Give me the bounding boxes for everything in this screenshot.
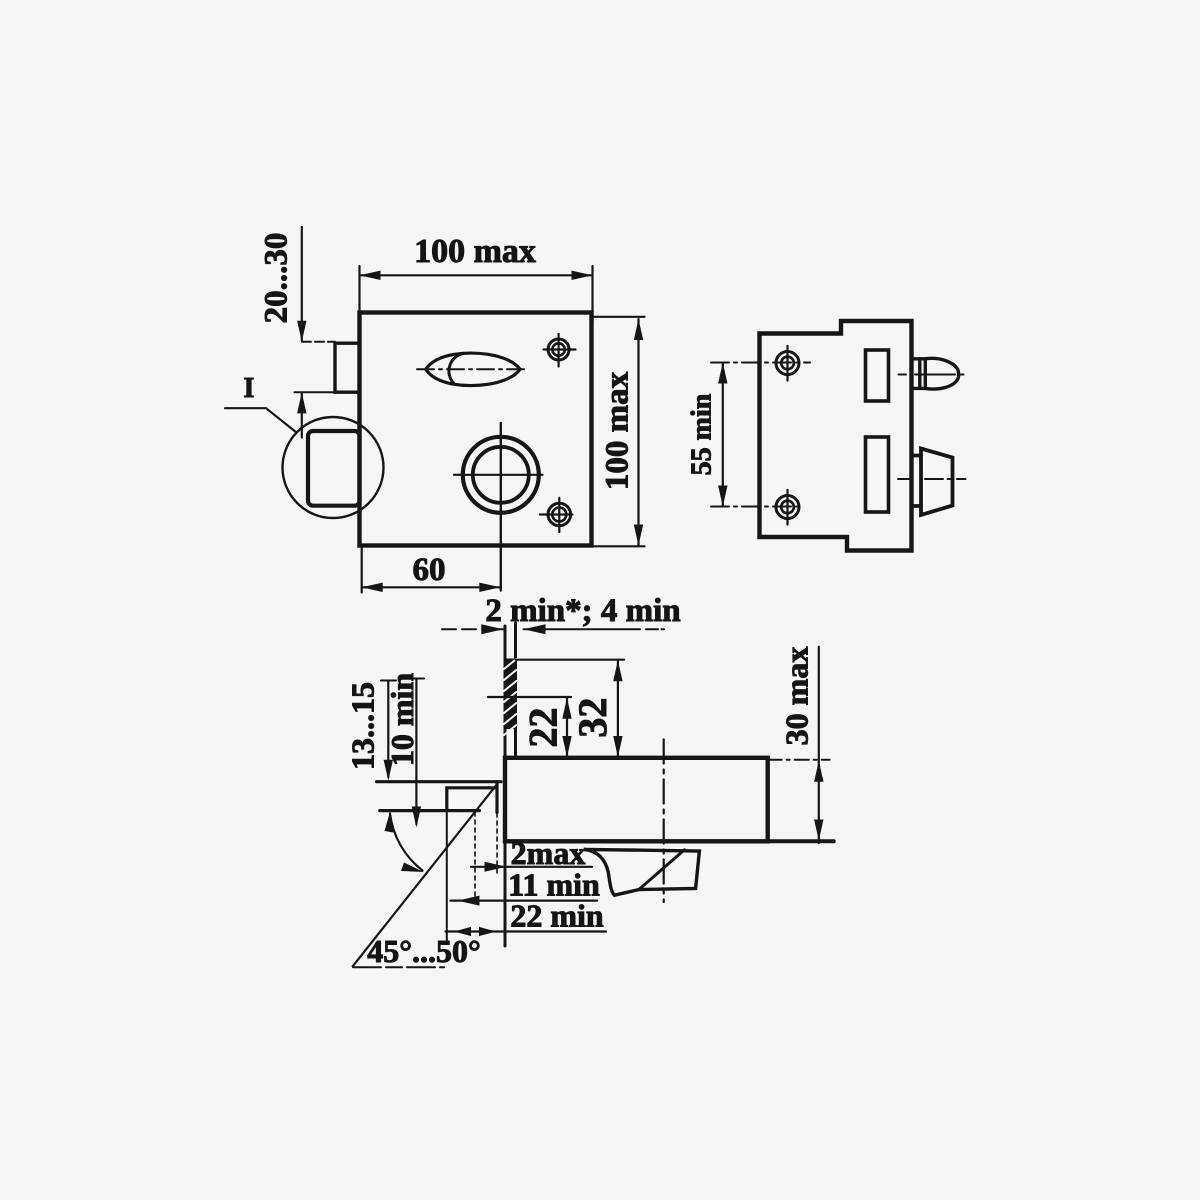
svg-text:100 max: 100 max [600, 371, 636, 490]
svg-text:60: 60 [413, 552, 446, 588]
svg-text:13...15: 13...15 [345, 682, 381, 770]
svg-text:10 min: 10 min [384, 673, 420, 767]
svg-text:22 min: 22 min [510, 898, 604, 934]
svg-text:100 max: 100 max [414, 233, 536, 270]
svg-text:32: 32 [570, 698, 615, 738]
svg-text:30 max: 30 max [779, 647, 815, 746]
svg-text:55 min: 55 min [687, 393, 718, 475]
svg-text:I: I [244, 373, 255, 404]
svg-text:22: 22 [521, 708, 566, 748]
svg-text:45°...50°: 45°...50° [367, 933, 481, 969]
svg-text:20...30: 20...30 [259, 233, 295, 324]
